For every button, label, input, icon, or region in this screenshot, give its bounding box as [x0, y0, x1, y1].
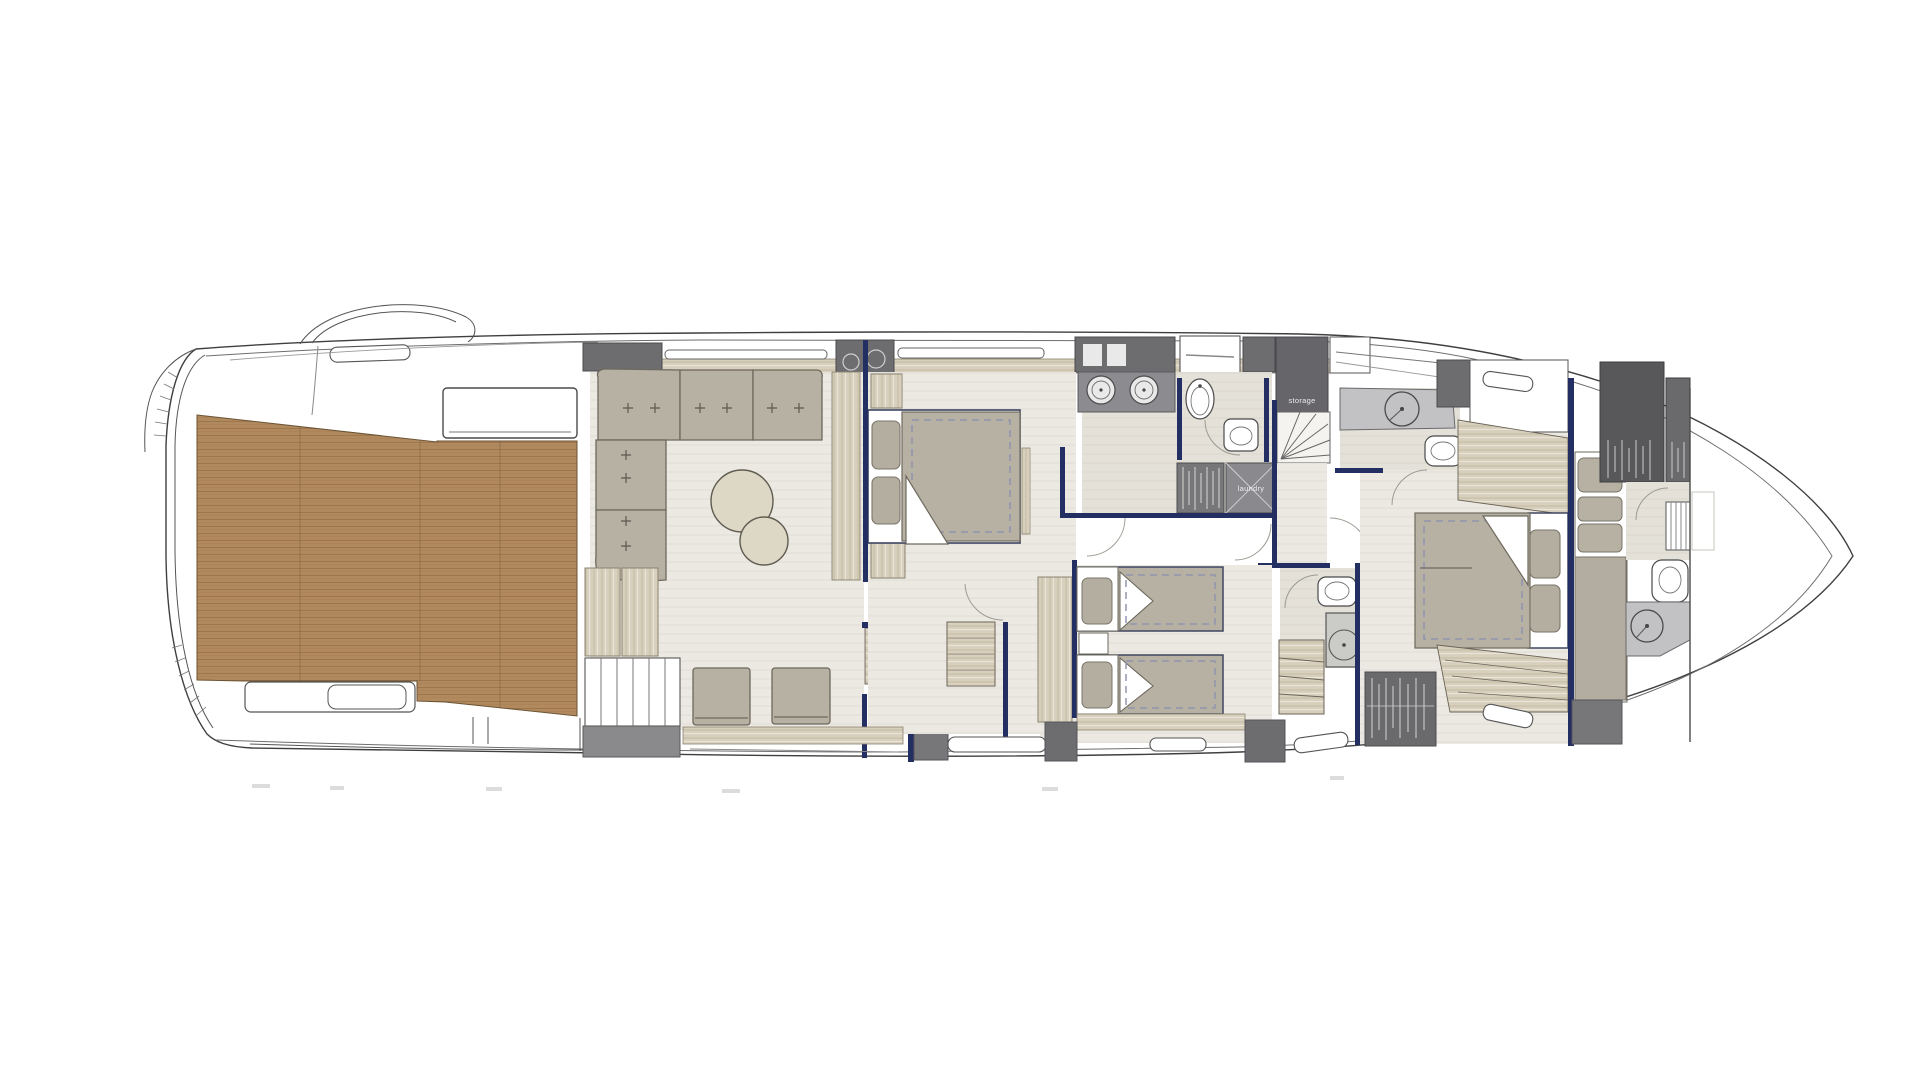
mullion-bath [1075, 337, 1175, 372]
vip-cabin [1335, 360, 1568, 746]
coffee-table-small [740, 517, 788, 565]
storage-closet: storage [1276, 337, 1328, 412]
master-fwd-wall [863, 340, 868, 582]
laundry-closet: laundry [1226, 463, 1276, 513]
nightstand-bottom [871, 538, 905, 578]
nightstand-top [871, 374, 902, 408]
sill-band-mid-bottom [1077, 714, 1245, 730]
crew-berth [1575, 452, 1627, 702]
bottom-window-2 [1150, 738, 1206, 751]
mullion-aft [583, 343, 662, 371]
aft-cabinet-2 [622, 568, 658, 656]
bath-mid-wall [1060, 513, 1277, 518]
master-window [898, 348, 1044, 358]
twin-nightstand [1079, 633, 1108, 654]
stern-step-inner [328, 685, 406, 709]
twin-bed-1 [1077, 567, 1223, 631]
gunwale-block-2 [1245, 720, 1285, 762]
aft-cabinet-1 [585, 568, 620, 656]
salon [583, 369, 864, 757]
toilet [1224, 419, 1258, 451]
cockpit-steps [585, 658, 680, 726]
aft-sunpad [443, 388, 577, 438]
stairs-fan [1277, 412, 1330, 463]
crew-wardrobe [1600, 362, 1690, 482]
bottom-window-1 [948, 737, 1046, 752]
master-bed [868, 410, 1020, 544]
twin-bed-2 [1077, 655, 1223, 714]
corridor-floor [1277, 463, 1327, 565]
vanity-double-sink [1078, 372, 1175, 412]
fwd-bath-toilet [1318, 577, 1356, 606]
crew-dark-block [1572, 700, 1622, 744]
gunwale-block-1 [1045, 722, 1077, 761]
salon-window [665, 350, 827, 359]
bow-bulkhead [1568, 378, 1574, 746]
crew-shower-door [1666, 502, 1690, 550]
bath-left-wall [1060, 447, 1065, 513]
laundry-label: laundry [1238, 484, 1265, 493]
lobby-right-wall [1272, 400, 1277, 568]
gunwale-block-aft [583, 726, 680, 757]
master-aft-wall-lower [1003, 622, 1008, 738]
vip-aft-wall [1355, 563, 1360, 745]
vip-bed [1415, 513, 1568, 648]
crew-toilet [1652, 560, 1688, 602]
hanging-locker-bath [1177, 463, 1224, 513]
teak-deck [197, 415, 577, 716]
vip-window-box [1470, 360, 1568, 432]
shadow-dashes [252, 778, 1344, 791]
mullion-storage [1243, 337, 1275, 372]
toilet-room [1177, 375, 1269, 462]
vip-hanging-locker [1365, 672, 1436, 746]
yacht-floor-plan: laundry storage [0, 0, 1920, 1080]
bulwark-window [330, 345, 410, 363]
salon-sideboard [832, 372, 860, 580]
master-bench [1022, 448, 1030, 534]
storage-label: storage [1288, 396, 1315, 405]
twin-sideboard [1038, 577, 1072, 722]
master-shelf-cabinet [947, 622, 995, 686]
vip-toilet [1425, 436, 1462, 466]
plan-drawing: laundry storage [0, 0, 1920, 1080]
sill-band-aft-bottom [683, 727, 903, 744]
